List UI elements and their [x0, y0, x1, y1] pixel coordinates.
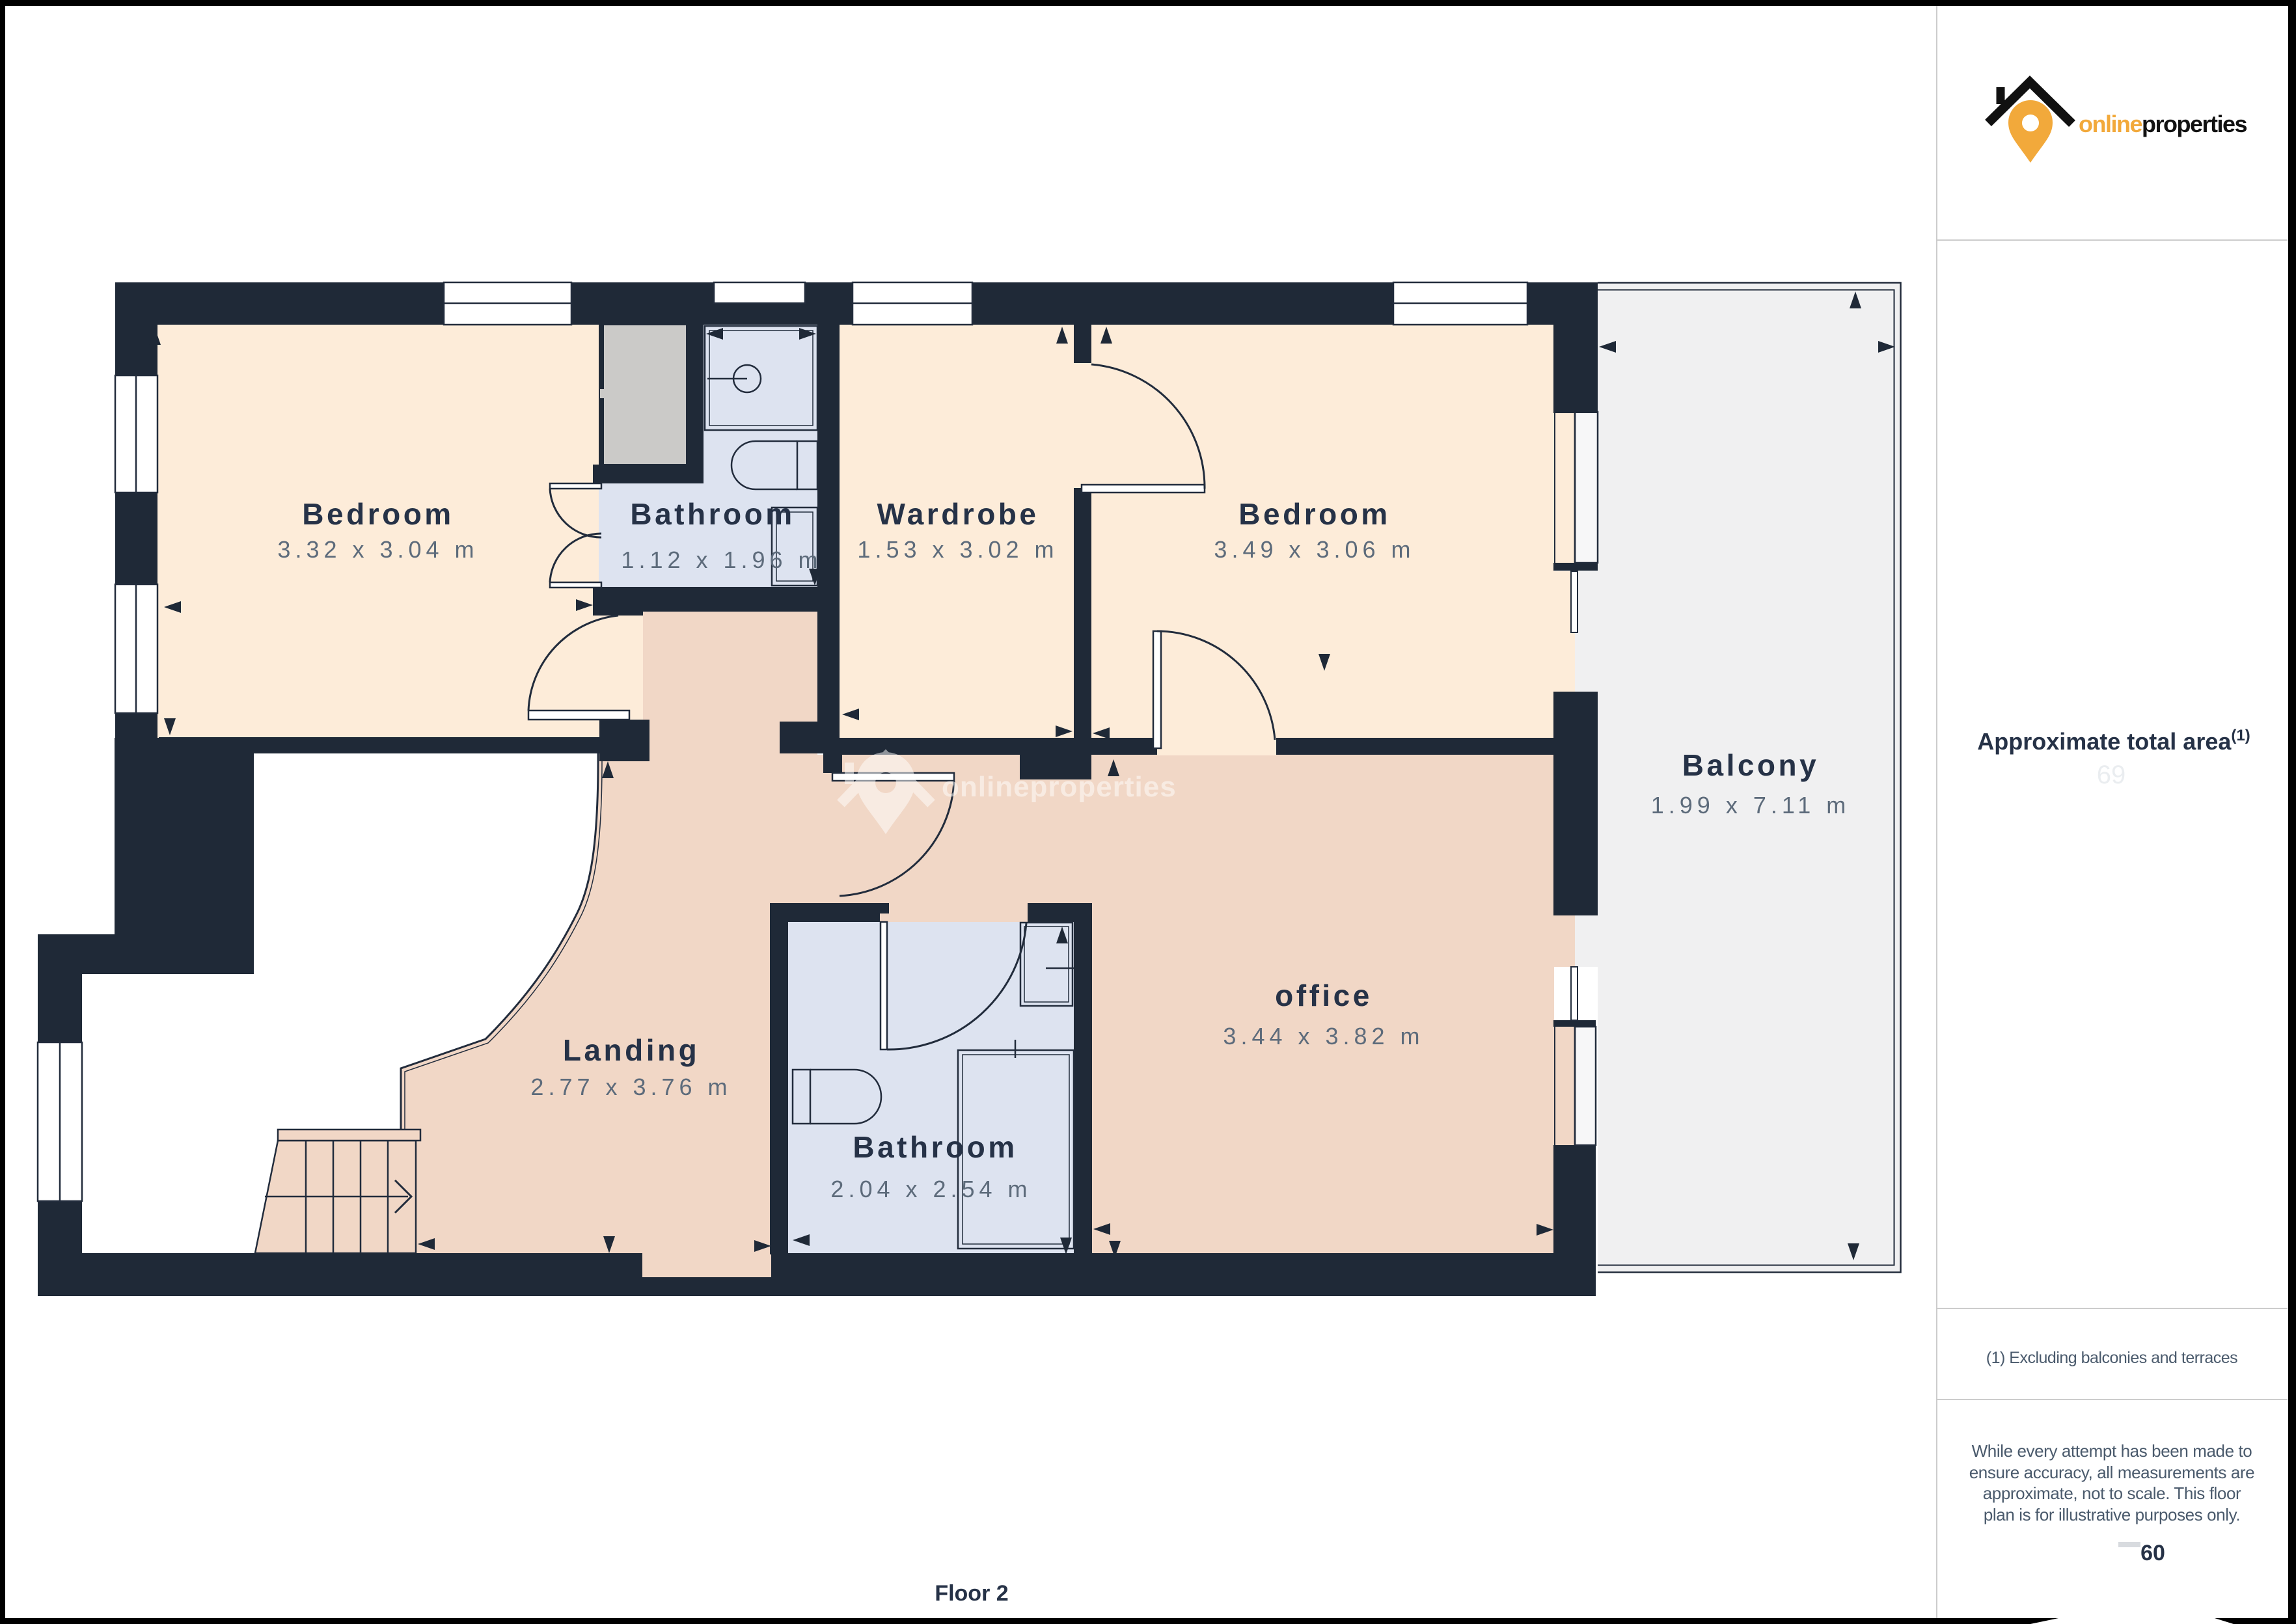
svg-text:1.12 x 1.96 m: 1.12 x 1.96 m: [621, 547, 822, 573]
svg-text:While every attempt has been m: While every attempt has been made to: [1972, 1441, 2252, 1461]
svg-text:Approximate total area(1): Approximate total area(1): [1977, 727, 2250, 755]
svg-text:Landing: Landing: [563, 1033, 700, 1067]
svg-text:3.44 x 3.82 m: 3.44 x 3.82 m: [1223, 1023, 1424, 1049]
svg-text:Bedroom: Bedroom: [1238, 497, 1390, 531]
svg-text:2.77 x 3.76 m: 2.77 x 3.76 m: [530, 1074, 731, 1100]
svg-text:1.99 x 7.11 m: 1.99 x 7.11 m: [1651, 792, 1850, 819]
svg-text:3.49 x 3.06 m: 3.49 x 3.06 m: [1214, 536, 1415, 563]
svg-text:ensure accuracy, all measureme: ensure accuracy, all measurements are: [1969, 1463, 2254, 1482]
svg-text:Bedroom: Bedroom: [302, 497, 454, 531]
svg-text:approximate, not to scale. Thi: approximate, not to scale. This floor: [1983, 1483, 2241, 1503]
svg-text:2.04 x 2.54 m: 2.04 x 2.54 m: [830, 1176, 1032, 1202]
svg-text:60: 60: [2140, 1541, 2165, 1565]
svg-text:1.53 x 3.02 m: 1.53 x 3.02 m: [857, 536, 1058, 563]
svg-text:onlineproperties: onlineproperties: [2079, 111, 2247, 137]
svg-text:Bathroom: Bathroom: [630, 497, 795, 531]
svg-text:onlineproperties: onlineproperties: [942, 771, 1177, 803]
svg-text:Bathroom: Bathroom: [853, 1130, 1017, 1164]
svg-text:3.32 x 3.04 m: 3.32 x 3.04 m: [277, 536, 478, 563]
svg-text:Floor 2: Floor 2: [935, 1581, 1008, 1606]
svg-text:plan is for illustrative purpo: plan is for illustrative purposes only.: [1984, 1505, 2240, 1524]
svg-text:Balcony: Balcony: [1682, 748, 1819, 782]
svg-text:office: office: [1275, 979, 1373, 1012]
svg-text:Wardrobe: Wardrobe: [877, 497, 1039, 531]
svg-text:69: 69: [2097, 761, 2126, 789]
svg-text:(1) Excluding balconies and te: (1) Excluding balconies and terraces: [1986, 1349, 2237, 1367]
